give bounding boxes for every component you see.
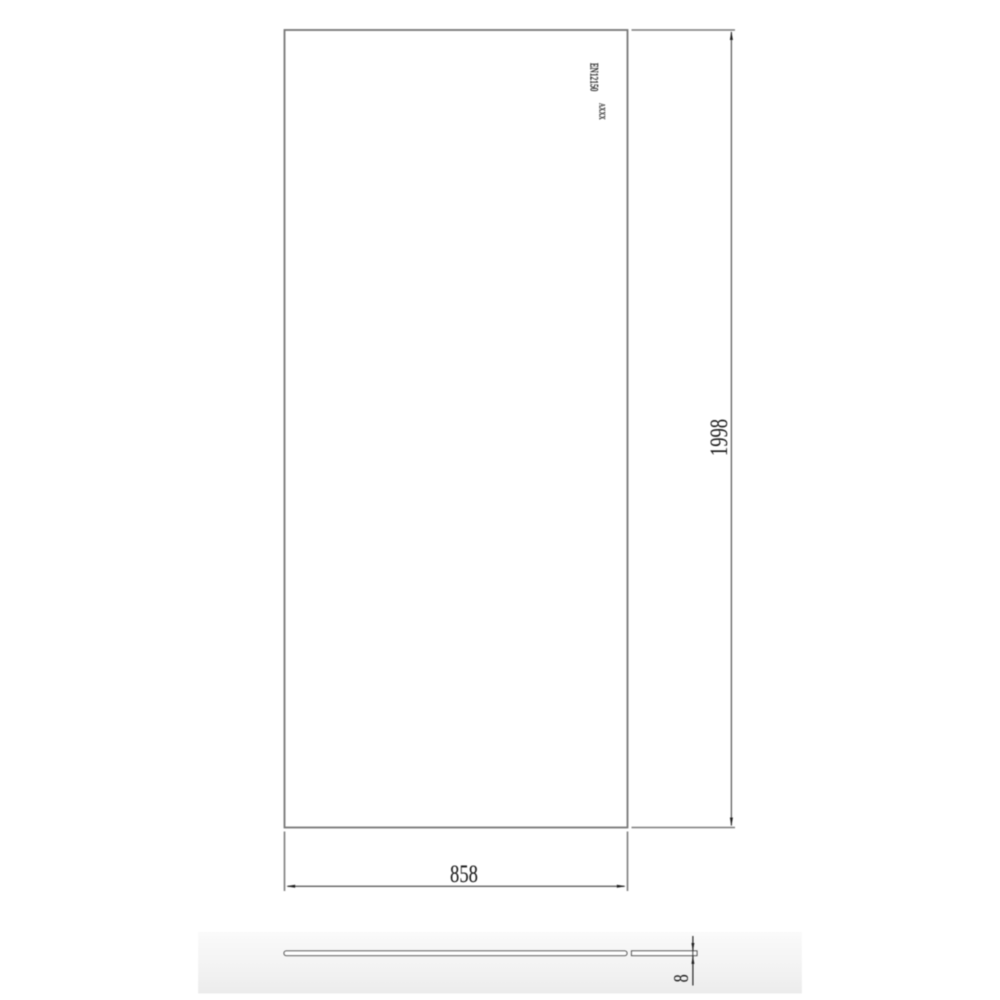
svg-text:8: 8	[670, 974, 694, 982]
svg-text:1998: 1998	[704, 419, 732, 456]
svg-text:EN12150: EN12150	[587, 63, 599, 92]
svg-text:858: 858	[450, 859, 478, 887]
svg-text:AXXX: AXXX	[597, 103, 608, 120]
